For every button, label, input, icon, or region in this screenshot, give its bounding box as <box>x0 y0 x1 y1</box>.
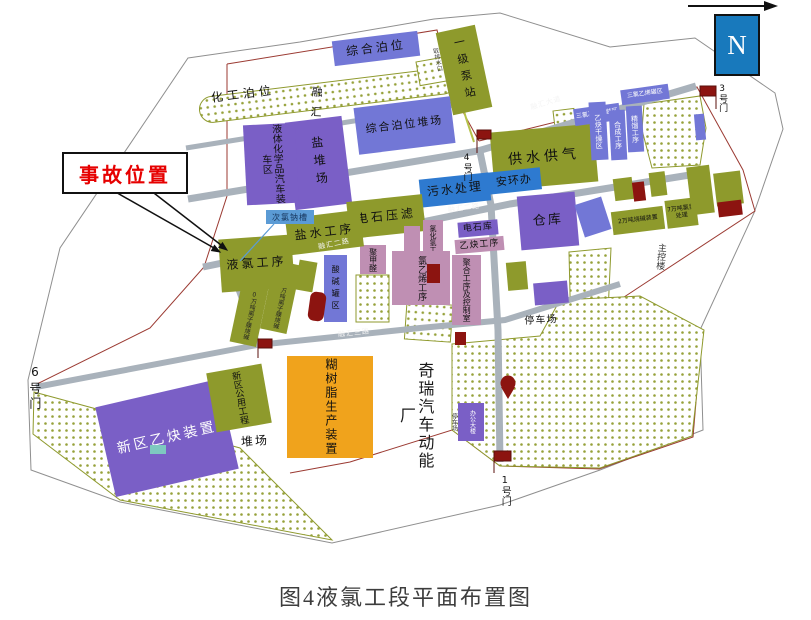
area-pom: 聚甲醛 <box>360 245 386 274</box>
small-building <box>613 177 635 201</box>
north-compass: N <box>714 14 760 76</box>
area-acetylene-drying: 乙炔干燥区 <box>588 102 608 161</box>
area-liquid-chlorine: 液氯工序 <box>218 235 295 293</box>
small-building <box>649 171 668 197</box>
area-warehouse: 仓库 <box>517 192 579 251</box>
area-polymer: 聚合工序及控制室 <box>452 255 481 325</box>
hypochlorite-tank-tag: 次氯钠槽 <box>266 210 314 224</box>
small-building <box>694 114 706 141</box>
accident-location-callout: 事故位置 <box>62 152 188 194</box>
stock-yard-label: 堆场 <box>234 433 275 452</box>
chery-plant-label: 奇瑞汽车动能厂 <box>402 354 428 478</box>
highlighted-building <box>427 264 440 283</box>
small-building <box>506 261 528 291</box>
area-paste-resin: 糊树脂生产装置 <box>287 356 373 458</box>
small-building <box>533 281 569 306</box>
small-building <box>404 226 420 252</box>
plant-layout-map: 化工泊位 融汇化工码头 综合泊位 一级泵站 取排水口 盐堆场 综合泊位堆场 液体… <box>0 0 811 620</box>
small-building <box>150 445 166 454</box>
parking-label-small: 停车场 <box>448 408 458 436</box>
area-vcm: 氯乙烯工序 <box>392 251 450 305</box>
small-building <box>455 332 466 345</box>
parking-label: 停车场 <box>518 313 565 329</box>
figure-caption: 图4液氯工段平面布置图 <box>0 580 811 612</box>
main-control-label: 主控楼 <box>650 237 669 274</box>
area-acid-alkali-tanks: 酸碱罐区 <box>324 255 347 322</box>
map-underlay <box>0 0 811 620</box>
area-office-building: 办公大楼 <box>458 403 484 441</box>
gate-6-label: 6号门 <box>24 356 44 420</box>
gate-3-label: 3号门 <box>714 78 730 118</box>
gate-4-label: 4号门 <box>460 148 473 186</box>
small-building <box>717 200 743 218</box>
area-synthesis: 合成工序 <box>609 110 628 161</box>
area-new-utilities: 新区公用工程 <box>206 364 272 433</box>
gate-1-label: 1号门 <box>497 470 512 510</box>
area-truck-loading: 液体化学品汽车装车区 <box>243 123 299 206</box>
small-building <box>632 181 646 201</box>
area-distillation: 精馏工序 <box>626 106 644 153</box>
